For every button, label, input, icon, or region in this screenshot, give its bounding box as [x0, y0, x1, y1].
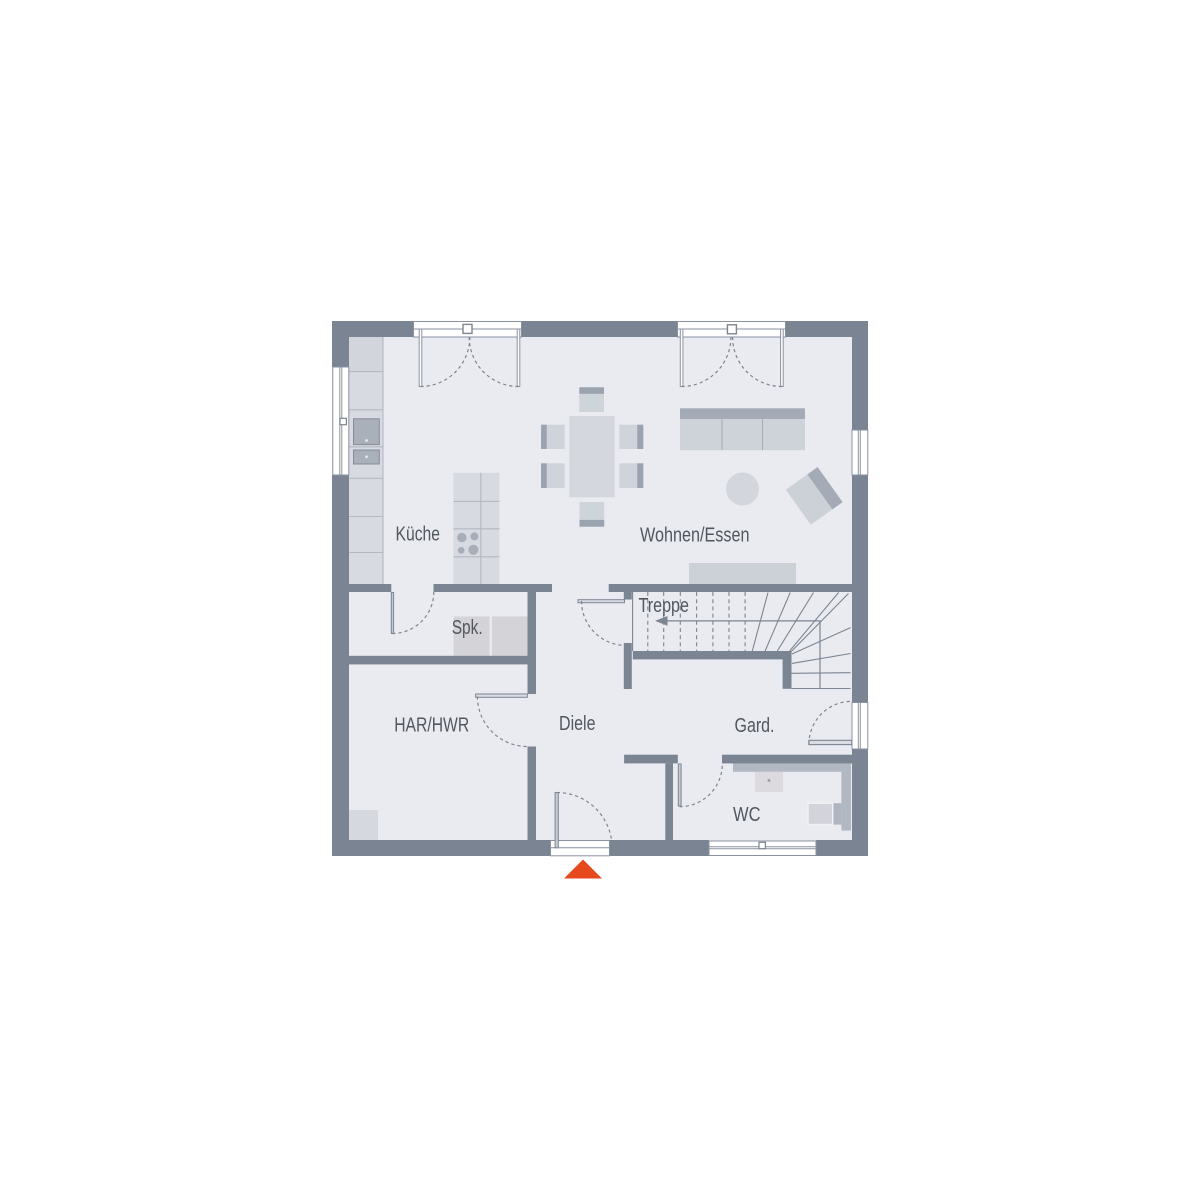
- svg-text:Diele: Diele: [559, 713, 596, 735]
- svg-text:Spk.: Spk.: [452, 617, 483, 639]
- svg-text:WC: WC: [733, 804, 761, 826]
- svg-text:Wohnen/Essen: Wohnen/Essen: [640, 524, 750, 546]
- svg-text:Küche: Küche: [396, 524, 441, 546]
- svg-text:Treppe: Treppe: [639, 595, 690, 617]
- svg-text:HAR/HWR: HAR/HWR: [394, 715, 469, 737]
- svg-text:Gard.: Gard.: [735, 715, 775, 737]
